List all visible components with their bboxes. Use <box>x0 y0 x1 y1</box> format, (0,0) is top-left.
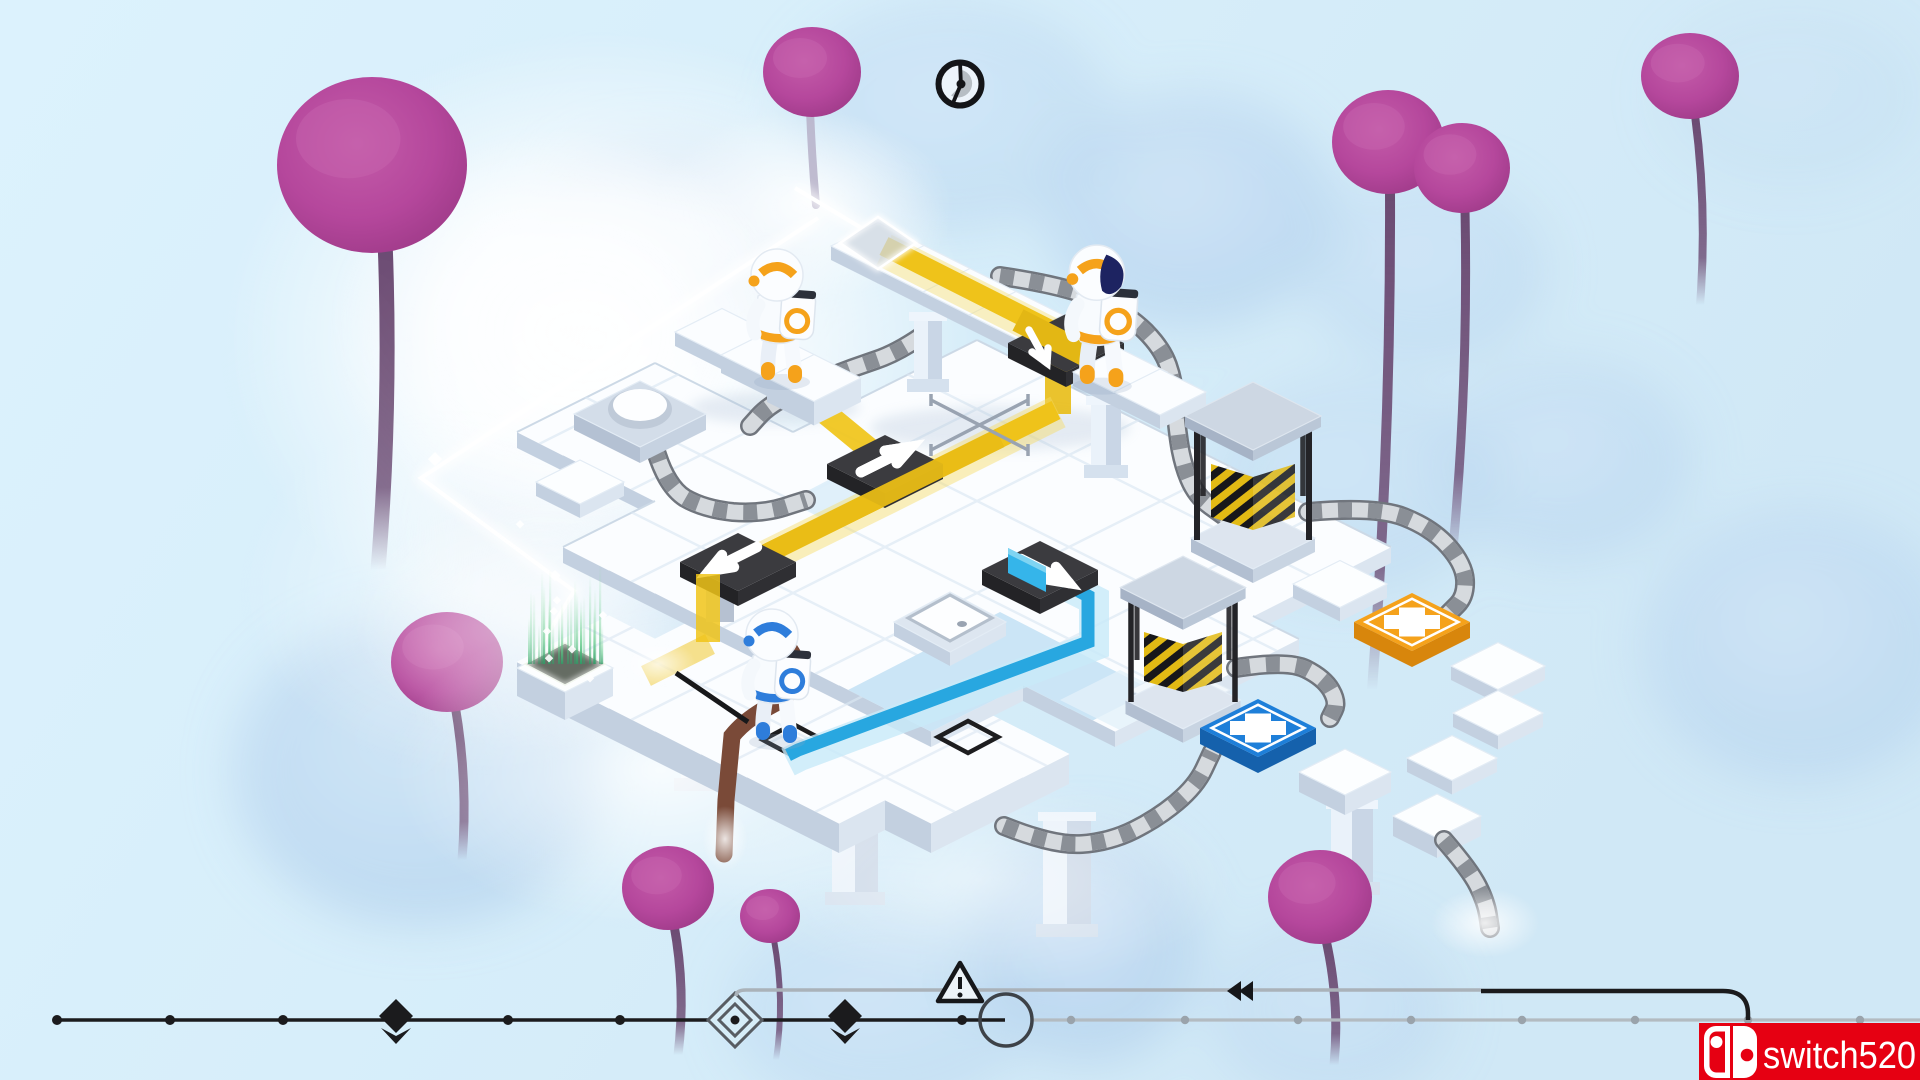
svg-text:switch520: switch520 <box>1763 1035 1916 1077</box>
